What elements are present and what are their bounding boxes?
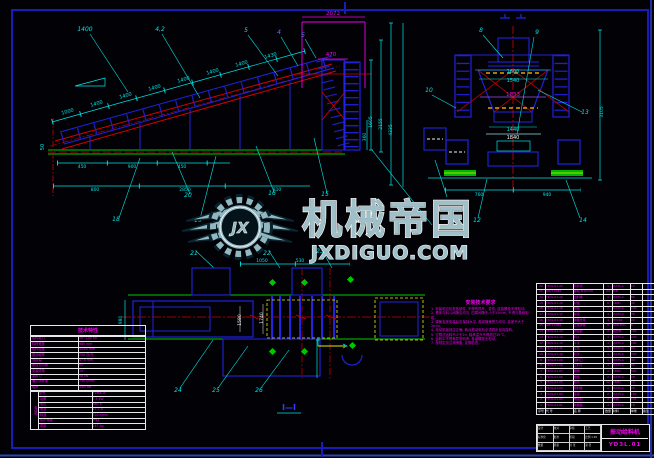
note-line: 7. 按规定加注润滑脂, 定期检查。 — [431, 341, 530, 345]
drawing-number: YD3L.01 — [602, 439, 648, 452]
cad-label: 4335 — [388, 124, 394, 136]
note-line: 3. 弹簧支座安装后应保持水平, 各组弹簧受力均匀, 高差不大于2mm。 — [431, 320, 530, 329]
note-line: 2. 槽体与料斗间隙应均匀, 四周间隙不小于25mm, 不得与基础相碰。 — [431, 311, 530, 320]
cad-label: 50 — [40, 144, 46, 150]
plan-view — [122, 264, 430, 388]
notes-lines: 1. 安装前应检查各部件, 不得有损坏、变形, 连接螺栓不得松动。2. 槽体与料… — [431, 307, 530, 345]
cad-label: 450 — [78, 164, 87, 170]
cad-label: 5 — [244, 27, 248, 34]
bom-table: 22YD3L.01-22防护罩1Q235-A1221GB/T 5782螺栓 M1… — [536, 283, 648, 415]
spec-table-title: 技术特性 — [30, 325, 146, 336]
cad-label: 1400 — [177, 75, 191, 84]
side-elevation-view — [48, 34, 345, 268]
watermark-domain: JXDIGUO.COM — [309, 242, 470, 264]
cad-label: 26 — [255, 387, 263, 394]
cad-label: 14 — [579, 217, 587, 224]
cad-label: 360 — [362, 133, 368, 142]
cad-label: 760 — [475, 192, 484, 198]
cad-label: 1600 — [507, 69, 520, 75]
cad-label: 21 — [190, 250, 198, 257]
notes-title: 安装技术要求 — [431, 299, 530, 306]
cad-label: 900 — [128, 164, 137, 170]
cad-label: 3105 — [599, 106, 605, 118]
logo-initials: JX — [228, 219, 250, 237]
cad-label: 20 — [184, 192, 192, 199]
cad-label: 13 — [581, 109, 589, 116]
cad-label: 4 — [277, 29, 281, 36]
cad-label: 1050 — [256, 258, 268, 264]
section-label: Ⅰ—Ⅰ — [282, 403, 296, 412]
cad-label: 450 — [178, 164, 187, 170]
spec-table: 技术特性 给料能力50~100 t/h料槽宽度980 mm给料粒度≤350 mm… — [30, 325, 146, 430]
cad-label: 2155 — [378, 118, 384, 130]
watermark-title: 机械帝国 — [302, 197, 474, 243]
cad-label: 980 — [118, 316, 124, 325]
cad-screenshot: Ⅰ—Ⅰ 14004,254510001400140014001400140014… — [0, 0, 654, 458]
cad-label: 470 — [326, 52, 337, 58]
cad-label: 1740 — [259, 312, 265, 324]
cad-label: 1440 — [507, 127, 520, 133]
cad-label: 1840 — [507, 135, 520, 141]
drawing-name: 振动给料机 — [602, 425, 648, 439]
cad-label: 4,2 — [155, 26, 165, 33]
gear-icon: JX — [212, 199, 268, 255]
cad-label: 25 — [212, 387, 220, 394]
cad-label: 1400 — [119, 91, 133, 100]
cad-label: 1605 — [368, 116, 374, 128]
cad-label: 1000 — [61, 107, 75, 116]
cad-label: 5 — [301, 32, 305, 39]
spec-table-main: 给料能力50~100 t/h料槽宽度980 mm给料粒度≤350 mm振动频率7… — [30, 336, 146, 391]
cad-label: 940 — [543, 192, 552, 198]
end-view — [372, 14, 602, 225]
watermark-logo: JX — [182, 199, 298, 255]
title-block: 设计校对审核工艺标准化批准阶段比例 1:20数量质量共 张第 张 振动给料机 Y… — [536, 424, 650, 452]
cad-label: 8 — [479, 27, 483, 34]
cad-label: 18 — [112, 216, 120, 223]
cad-label: 1400 — [77, 26, 92, 33]
cad-label: 10 — [425, 87, 433, 94]
notes-block: 安装技术要求 1. 安装前应检查各部件, 不得有损坏、变形, 连接螺栓不得松动。… — [431, 299, 530, 345]
title-block-grid: 设计校对审核工艺标准化批准阶段比例 1:20数量质量共 张第 张 — [537, 425, 601, 451]
cad-label: 9 — [535, 29, 539, 36]
cad-label: 1400 — [90, 99, 104, 108]
cad-label: 2072 — [326, 11, 340, 17]
hopper-front-view — [295, 17, 403, 187]
cad-label: 1540 — [507, 78, 520, 84]
spec-table-motor: 电动机型号Y160L-8功率7.5 kW电压380 V电流17.7 A转速720… — [30, 391, 146, 430]
cad-label: 22 — [263, 250, 271, 257]
note-line: 4. 电动机接线应正确, 两台振动电机必须同步反向旋转。 — [431, 328, 530, 332]
cad-label: 12 — [473, 217, 481, 224]
cad-label: 800 — [91, 187, 100, 193]
watermark: JX 机械帝国 JXDIGUO.COM — [182, 197, 474, 264]
cad-label: 1580 — [237, 314, 243, 326]
cad-label: 1833 — [506, 92, 520, 98]
cad-label: 24 — [174, 387, 182, 394]
cad-label: 1400 — [148, 83, 162, 92]
cad-label: 530 — [296, 258, 305, 264]
cad-label: 16 — [268, 190, 276, 197]
section-mark: Ⅰ—Ⅰ — [277, 403, 301, 413]
